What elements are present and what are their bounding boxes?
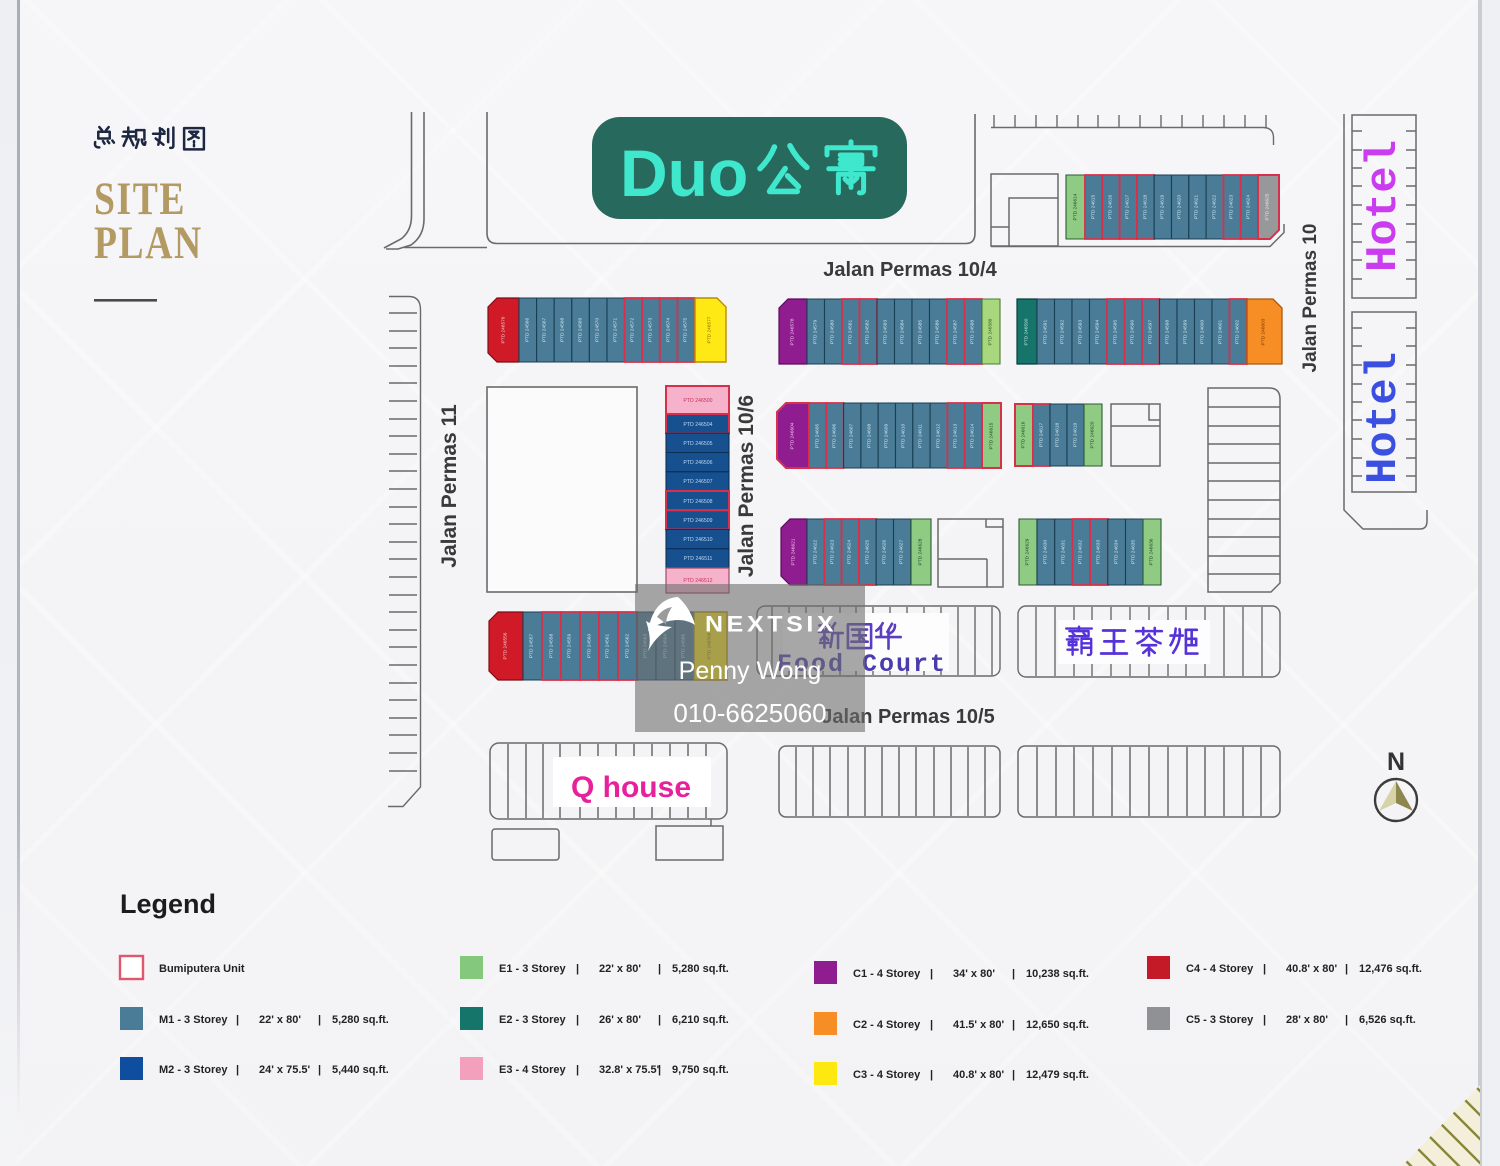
svg-text:PTD 24587: PTD 24587 bbox=[953, 320, 959, 345]
svg-text:PTD 24591: PTD 24591 bbox=[1043, 320, 1049, 345]
svg-text:PTD 24611: PTD 24611 bbox=[918, 424, 924, 448]
svg-text:PTD 24569: PTD 24569 bbox=[578, 318, 584, 343]
svg-text:PTD 246636: PTD 246636 bbox=[1149, 538, 1155, 565]
svg-text:PTD 24557: PTD 24557 bbox=[529, 634, 535, 659]
svg-text:PTD 24582: PTD 24582 bbox=[865, 320, 871, 345]
svg-text:PTD 24585: PTD 24585 bbox=[918, 320, 924, 345]
svg-text:PTD 24559: PTD 24559 bbox=[567, 634, 573, 659]
svg-text:PTD 246621: PTD 246621 bbox=[791, 538, 797, 565]
svg-text:PTD 24560: PTD 24560 bbox=[587, 634, 593, 659]
svg-text:PTD 24635: PTD 24635 bbox=[1131, 540, 1137, 565]
svg-text:PTD 246615: PTD 246615 bbox=[989, 422, 995, 449]
svg-text:PTD 24624: PTD 24624 bbox=[1246, 195, 1252, 220]
svg-text:PTD 24623: PTD 24623 bbox=[830, 540, 836, 565]
svg-text:PTD 24579: PTD 24579 bbox=[813, 320, 819, 345]
svg-text:E1 - 3 Storey|22' x 80'|5,280: E1 - 3 Storey|22' x 80'|5,280 sq.ft. bbox=[499, 963, 729, 975]
svg-text:PTD 246620: PTD 246620 bbox=[1090, 421, 1096, 448]
svg-text:C3 - 4 Storey|40.8' x 80'|12,4: C3 - 4 Storey|40.8' x 80'|12,479 sq.ft. bbox=[853, 1069, 1089, 1081]
svg-text:Jalan Permas 10/4: Jalan Permas 10/4 bbox=[823, 259, 997, 281]
svg-text:PTD 24573: PTD 24573 bbox=[648, 318, 654, 343]
svg-text:Bumiputera Unit: Bumiputera Unit bbox=[159, 963, 245, 975]
svg-text:PTD 24561: PTD 24561 bbox=[605, 634, 611, 659]
svg-text:PTD 24618: PTD 24618 bbox=[1143, 195, 1149, 220]
svg-text:PTD 24616: PTD 24616 bbox=[1108, 195, 1114, 220]
svg-text:PTD 24619: PTD 24619 bbox=[1160, 195, 1166, 220]
svg-text:PTD 24594: PTD 24594 bbox=[1095, 320, 1101, 345]
svg-text:PTD 24615: PTD 24615 bbox=[1091, 195, 1097, 220]
svg-text:PTD 246616: PTD 246616 bbox=[1021, 421, 1027, 448]
svg-text:PTD 24580: PTD 24580 bbox=[830, 320, 836, 345]
svg-text:C2 - 4 Storey|41.5' x 80'|12,6: C2 - 4 Storey|41.5' x 80'|12,650 sq.ft. bbox=[853, 1019, 1089, 1031]
svg-text:PTD 24608: PTD 24608 bbox=[867, 424, 873, 449]
svg-text:PTD 24592: PTD 24592 bbox=[1060, 320, 1066, 345]
svg-text:PTD 24620: PTD 24620 bbox=[1177, 195, 1183, 220]
svg-text:PTD 24621: PTD 24621 bbox=[1194, 195, 1200, 220]
svg-text:PTD 24626: PTD 24626 bbox=[882, 540, 888, 565]
svg-text:PTD 24632: PTD 24632 bbox=[1078, 540, 1084, 565]
svg-text:PTD 24588: PTD 24588 bbox=[970, 320, 976, 345]
svg-text:PTD 24558: PTD 24558 bbox=[549, 634, 555, 659]
svg-text:PTD 24571: PTD 24571 bbox=[613, 318, 619, 343]
svg-text:PTD 246614: PTD 246614 bbox=[1073, 193, 1079, 220]
svg-text:PTD 24566: PTD 24566 bbox=[525, 318, 531, 343]
svg-text:PTD 24622: PTD 24622 bbox=[813, 540, 819, 565]
svg-text:PTD 24607: PTD 24607 bbox=[849, 424, 855, 449]
svg-text:Jalan Permas 10: Jalan Permas 10 bbox=[1300, 224, 1321, 373]
svg-text:PTD 24600: PTD 24600 bbox=[1200, 320, 1206, 345]
svg-text:Jalan Permas 10/6: Jalan Permas 10/6 bbox=[735, 395, 758, 577]
svg-text:PTD 24625: PTD 24625 bbox=[865, 540, 871, 565]
svg-text:PTD 24581: PTD 24581 bbox=[848, 320, 854, 345]
svg-text:PTD 24605: PTD 24605 bbox=[815, 424, 821, 449]
svg-text:PTD 246505: PTD 246505 bbox=[683, 441, 712, 447]
svg-text:PTD 24631: PTD 24631 bbox=[1061, 540, 1067, 565]
svg-text:Legend: Legend bbox=[120, 889, 216, 919]
svg-text:PTD 246625: PTD 246625 bbox=[1265, 193, 1271, 220]
svg-text:PTD 24627: PTD 24627 bbox=[899, 540, 905, 565]
svg-text:Duo: Duo bbox=[620, 136, 748, 210]
svg-text:PTD 24614: PTD 24614 bbox=[970, 424, 976, 449]
svg-text:PTD 24623: PTD 24623 bbox=[1229, 195, 1235, 220]
svg-text:PTD 24562: PTD 24562 bbox=[625, 634, 631, 659]
svg-text:PTD 246576: PTD 246576 bbox=[501, 316, 507, 343]
svg-text:PTD 246556: PTD 246556 bbox=[503, 632, 509, 659]
svg-text:PTD 246590: PTD 246590 bbox=[1024, 318, 1030, 345]
svg-text:PTD 24596: PTD 24596 bbox=[1130, 320, 1136, 345]
svg-text:E3 - 4 Storey|32.8' x 75.5'|9,: E3 - 4 Storey|32.8' x 75.5'|9,750 sq.ft. bbox=[499, 1064, 729, 1076]
svg-text:PTD 24570: PTD 24570 bbox=[595, 318, 601, 343]
svg-text:M1 - 3 Storey|22' x 80'|5,280: M1 - 3 Storey|22' x 80'|5,280 sq.ft. bbox=[159, 1014, 389, 1026]
svg-text:Jalan Permas 11: Jalan Permas 11 bbox=[438, 404, 461, 568]
svg-text:PTD 246604: PTD 246604 bbox=[790, 422, 796, 449]
svg-text:PTD 246628: PTD 246628 bbox=[918, 538, 924, 565]
svg-text:PLAN: PLAN bbox=[94, 217, 203, 269]
svg-text:Hotel: Hotel bbox=[1359, 140, 1409, 272]
svg-text:N: N bbox=[1387, 748, 1405, 776]
svg-text:PTD 246510: PTD 246510 bbox=[683, 537, 712, 543]
svg-text:PTD 24575: PTD 24575 bbox=[683, 318, 689, 343]
svg-text:PTD 24619: PTD 24619 bbox=[1073, 423, 1079, 448]
svg-text:E2 - 3 Storey|26' x 80'|6,210: E2 - 3 Storey|26' x 80'|6,210 sq.ft. bbox=[499, 1014, 729, 1026]
svg-text:PTD 24598: PTD 24598 bbox=[1165, 320, 1171, 345]
svg-text:PTD 24584: PTD 24584 bbox=[900, 320, 906, 345]
svg-text:PTD 24593: PTD 24593 bbox=[1078, 320, 1084, 345]
svg-text:M2 - 3 Storey|24' x 75.5'|5,44: M2 - 3 Storey|24' x 75.5'|5,440 sq.ft. bbox=[159, 1064, 389, 1076]
svg-text:PTD 246577: PTD 246577 bbox=[707, 316, 713, 343]
svg-text:PTD 246506: PTD 246506 bbox=[683, 460, 712, 466]
svg-text:PTD 24624: PTD 24624 bbox=[847, 540, 853, 565]
svg-text:PTD 24572: PTD 24572 bbox=[630, 318, 636, 343]
svg-text:PTD 24618: PTD 24618 bbox=[1055, 423, 1061, 448]
svg-text:PTD 24597: PTD 24597 bbox=[1148, 320, 1154, 345]
svg-text:PTD 246508: PTD 246508 bbox=[683, 499, 712, 505]
svg-text:PTD 24613: PTD 24613 bbox=[953, 424, 959, 449]
svg-text:PTD 24601: PTD 24601 bbox=[1218, 320, 1224, 345]
svg-text:PTD 24583: PTD 24583 bbox=[883, 320, 889, 345]
svg-text:PTD 24610: PTD 24610 bbox=[901, 424, 907, 449]
svg-text:PTD 24622: PTD 24622 bbox=[1212, 195, 1218, 220]
svg-text:C4 - 4 Storey|40.8' x 80'|12,4: C4 - 4 Storey|40.8' x 80'|12,476 sq.ft. bbox=[1186, 963, 1422, 975]
svg-text:PTD 246504: PTD 246504 bbox=[683, 422, 712, 428]
svg-text:PTD 24609: PTD 24609 bbox=[884, 424, 890, 449]
svg-text:PTD 24574: PTD 24574 bbox=[666, 318, 672, 343]
svg-text:Q house: Q house bbox=[571, 771, 691, 804]
svg-text:PTD 246500: PTD 246500 bbox=[683, 398, 712, 404]
svg-text:PTD 24586: PTD 24586 bbox=[935, 320, 941, 345]
svg-text:C5 - 3 Storey|28' x 80'|6,526: C5 - 3 Storey|28' x 80'|6,526 sq.ft. bbox=[1186, 1014, 1416, 1026]
svg-text:PTD 24599: PTD 24599 bbox=[1183, 320, 1189, 345]
svg-text:PTD 24634: PTD 24634 bbox=[1114, 540, 1120, 565]
svg-text:PTD 24630: PTD 24630 bbox=[1043, 540, 1049, 565]
svg-text:Hotel: Hotel bbox=[1359, 352, 1409, 484]
svg-text:PTD 246511: PTD 246511 bbox=[684, 556, 713, 562]
svg-text:PTD 24602: PTD 24602 bbox=[1235, 320, 1241, 345]
svg-text:PTD 24612: PTD 24612 bbox=[936, 424, 942, 449]
svg-text:PTD 246509: PTD 246509 bbox=[683, 518, 712, 524]
svg-text:C1 - 4 Storey|34' x 80'|10,238: C1 - 4 Storey|34' x 80'|10,238 sq.ft. bbox=[853, 968, 1089, 980]
svg-text:PTD 246507: PTD 246507 bbox=[683, 479, 712, 485]
svg-text:PTD 24633: PTD 24633 bbox=[1096, 540, 1102, 565]
svg-text:PTD 24617: PTD 24617 bbox=[1125, 195, 1131, 220]
svg-text:PTD 24595: PTD 24595 bbox=[1113, 320, 1119, 345]
svg-text:PTD 24617: PTD 24617 bbox=[1039, 423, 1045, 448]
svg-text:PTD 246603: PTD 246603 bbox=[1261, 318, 1267, 345]
svg-text:PTD 246578: PTD 246578 bbox=[790, 318, 796, 345]
svg-text:PTD 246629: PTD 246629 bbox=[1025, 538, 1031, 565]
svg-text:PTD 24606: PTD 24606 bbox=[832, 424, 838, 449]
svg-text:PTD 24567: PTD 24567 bbox=[542, 318, 548, 343]
svg-text:PTD 24568: PTD 24568 bbox=[560, 318, 566, 343]
svg-text:PTD 246589: PTD 246589 bbox=[988, 318, 994, 345]
